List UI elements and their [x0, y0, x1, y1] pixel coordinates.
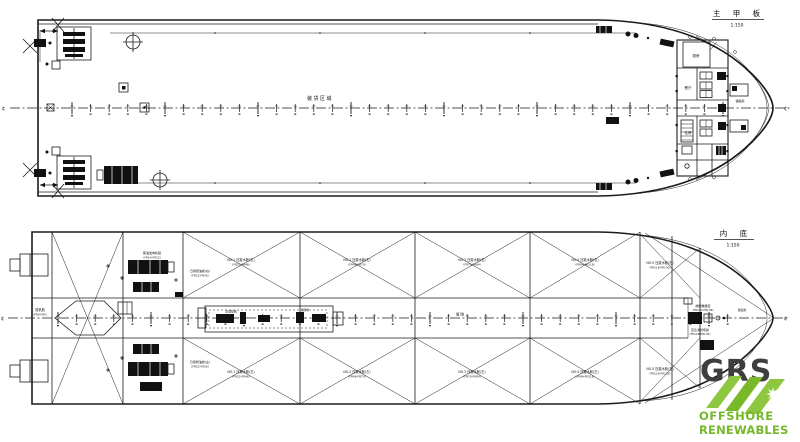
logo-line1: OFFSHORE [699, 409, 774, 423]
tank-range: (FR22-FR46) [232, 375, 249, 379]
fire-pump-label: 消防泵 [301, 308, 310, 312]
view-title: 内 底 1:150 [714, 228, 754, 249]
emergency-pump-range: (FR128-FR132) [690, 332, 711, 336]
centerline-symbol-left: ¢ [2, 106, 5, 112]
ga-drawing-sheet: ¢ ¢ [0, 0, 800, 442]
frame-ticks [56, 312, 729, 326]
frame-ticks [70, 102, 724, 116]
inner-bottom-scale: 1:150 [727, 243, 740, 249]
genset-stbd-label: 柴油发电机组 [143, 250, 161, 255]
logo-line2: RENEWABLES [699, 423, 789, 437]
cabin-label: 住房 [685, 130, 693, 135]
mess-label: 餐厅 [685, 85, 693, 90]
mess-tables [700, 72, 712, 136]
tank-label: NO.3 压载水舱(右) [458, 257, 485, 262]
steering-room-label: 舵机舱 [35, 307, 45, 312]
tank-label: NO.5 压载水舱(右) [646, 260, 673, 265]
tank-range: (FR46-FR70) [348, 263, 365, 267]
tank-range: (FR70-FR94) [463, 375, 480, 379]
mooring-winch-forward-port [23, 18, 91, 69]
tunnel-label: 管 隧 [456, 312, 465, 317]
ballast-tank-labels-port: NO.1 压载水舱(左) (FR22-FR46) NO.2 压载水舱(左) (F… [227, 366, 673, 379]
steering-room-range: (FR0-FR5) [33, 313, 47, 317]
fuel-stbd-range: (FR22-FR26) [191, 274, 208, 278]
tank-label: NO.4 压载水舱(左) [571, 369, 598, 374]
fuel-port-label: 日用燃油舱(左) [190, 359, 210, 364]
genset-stbd-range: (FR14-FR22) [143, 256, 160, 260]
mooring-winch-aft-port [23, 147, 138, 198]
tank-range: (FR94-FR118) [575, 263, 594, 267]
tank-label: NO.5 压载水舱(左) [646, 366, 673, 371]
ballast-tank-labels-starboard: NO.1 压载水舱(右) (FR22-FR46) NO.2 压载水舱(右) (F… [227, 257, 673, 270]
pipe-tunnel: 压载泵组 消防泵 [205, 306, 343, 332]
tank-range: (FR118-FR130) [650, 266, 671, 270]
centerline: ¢ ¢ [2, 106, 790, 112]
fuel-port-range: (FR22-FR26) [191, 365, 208, 369]
tank-label: NO.1 压载水舱(左) [227, 369, 254, 374]
tank-label: NO.2 压载水舱(左) [343, 369, 370, 374]
tank-range: (FR70-FR94) [463, 263, 480, 267]
genset-port-range: (FR14-FR22) [143, 388, 160, 392]
chain-locker-label: 锚链舱 [738, 308, 747, 312]
tank-label: NO.1 压载水舱(右) [227, 257, 254, 262]
tank-label: NO.2 压载水舱(右) [343, 257, 370, 262]
ballast-pump-label: 压载泵组 [225, 310, 236, 314]
main-deck-title: 主 甲 板 [713, 8, 765, 18]
galley-label: 厨房 [693, 53, 701, 58]
inner-bottom-plan: ¢ ¢ 压载泵组 消防泵 [0, 222, 800, 442]
centerline-symbol-right: ¢ [784, 106, 787, 112]
star-icon [766, 387, 780, 401]
thruster-room-range: (FR132-FR136) [693, 308, 714, 312]
genset-port-label: 柴油发电机组 [143, 382, 161, 387]
deck-area-label: 装货区域 [307, 95, 333, 102]
bow-centerline-label: 锚链舱 [735, 98, 744, 103]
engine-room-machinery [106, 260, 206, 391]
centerline-symbol-left: ¢ [1, 316, 4, 322]
view-title: 主 甲 板 1:150 [712, 8, 765, 29]
tank-label: NO.4 压载水舱(右) [571, 257, 598, 262]
tank-range: (FR94-FR118) [575, 375, 594, 379]
tank-range: (FR46-FR70) [348, 375, 365, 379]
tank-range: (FR22-FR46) [232, 263, 249, 267]
tank-range: (FR118-FR130) [650, 372, 671, 376]
main-deck-scale: 1:150 [731, 23, 744, 29]
main-deck-plan: ¢ ¢ [0, 0, 800, 222]
grs-offshore-renewables-logo: GRS OFFSHORE RENEWABLES [688, 350, 800, 442]
fuel-stbd-label: 日用燃油舱(右) [190, 268, 210, 273]
tank-label: NO.3 压载水舱(左) [458, 369, 485, 374]
inner-bottom-title: 内 底 [720, 228, 752, 238]
centerline-symbol-right: ¢ [784, 316, 787, 322]
